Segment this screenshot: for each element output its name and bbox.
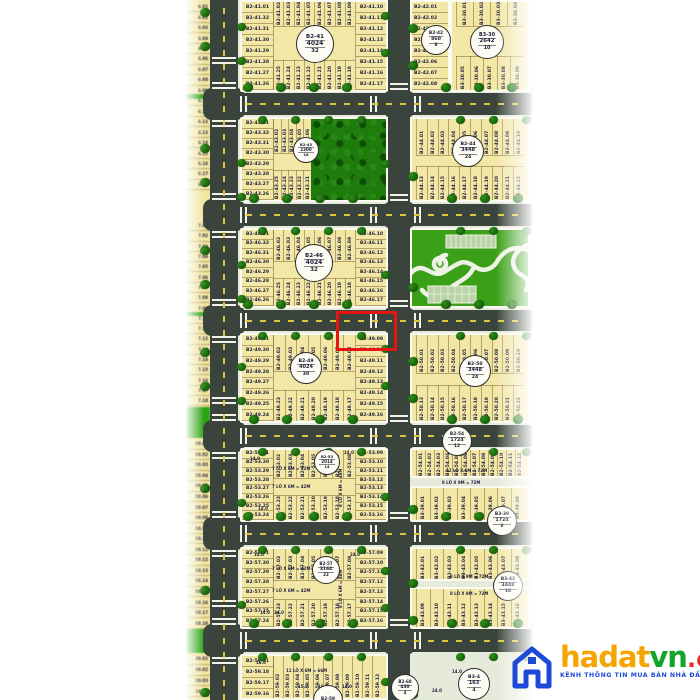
plot-label: B2-49.15	[360, 402, 383, 407]
plot-label: B2-43.28	[246, 172, 269, 177]
plot-label: B2-46.08	[338, 230, 343, 261]
selected-plot-highlight	[336, 311, 397, 351]
plot-label: B2-53.11	[360, 469, 383, 474]
strip-plot-label: 7.18	[198, 398, 208, 403]
plot-label: B2-50.04	[452, 335, 457, 373]
plot-label: B2-50.21	[506, 396, 511, 421]
badge-lot-count: 16	[505, 590, 511, 595]
plot-label: B2-46.30	[246, 260, 269, 265]
strip-plot-label: 7.15	[198, 367, 208, 372]
block-badge: B2-50344824	[459, 355, 491, 387]
tree-icon	[408, 394, 418, 403]
plot-label: B2-53.27	[246, 486, 269, 491]
plot-cell: B2-53.11	[356, 468, 387, 477]
tree-icon	[291, 546, 300, 554]
plot-label: B2-44.18	[474, 175, 479, 200]
block-badge: B2-46402432	[295, 244, 333, 282]
plot-cell: B2-49.16	[356, 410, 387, 421]
tree-icon	[408, 172, 418, 181]
block-badge: B2-41402432	[296, 25, 334, 63]
plot-cell: B2-41.17	[356, 79, 387, 90]
plot-label: B2-53.21	[301, 495, 306, 520]
plot-label: B2-46.16	[360, 289, 383, 294]
plot-label: B2-53.29	[246, 469, 269, 474]
tree-icon	[324, 332, 333, 340]
block-badge: B3-41634	[458, 668, 490, 700]
plot-cell: B2-41.10	[356, 2, 387, 13]
plot-label: B2-57.11	[360, 570, 383, 575]
tree-icon	[237, 193, 246, 201]
plot-cell: B2-57.13	[356, 588, 387, 598]
strip-plot-label: 7.12	[198, 336, 208, 341]
plot-label: B2-59.02	[276, 656, 281, 698]
plot-label: B2-41.06	[318, 2, 323, 26]
tree-icon	[309, 83, 319, 92]
strip-plot-label: 6.06	[198, 56, 208, 61]
crosswalk	[390, 512, 408, 519]
strip-plot-label: 39.01	[195, 656, 208, 661]
plot-cell: B2-57.28	[242, 578, 273, 588]
tree-icon	[237, 397, 246, 405]
plot-label: B2-46.09	[348, 230, 353, 261]
strip-plot-cell: 6.06	[186, 54, 210, 64]
plot-label: B2-49.21	[301, 396, 306, 421]
plot-label: B2-44.02	[431, 119, 436, 155]
tree-icon	[357, 653, 366, 661]
tree-icon	[447, 194, 457, 203]
tree-icon	[441, 300, 451, 309]
strip-plot-cell: 58.12	[186, 555, 210, 566]
tree-icon	[456, 332, 465, 340]
dimension-annotation: 8 LÔ X 6M = 48M	[338, 461, 343, 507]
tree-icon	[324, 546, 333, 554]
strip-plot-label: 6.17	[198, 171, 208, 176]
tree-icon	[309, 300, 319, 309]
badge-area: 163	[467, 680, 482, 688]
plot-cell: B2-44.10	[513, 119, 525, 155]
plot-label: B2-50.08	[495, 335, 500, 373]
plot-label: B2-49.02	[277, 335, 282, 371]
plot-label: B2-53.13	[360, 486, 383, 491]
tree-icon	[237, 363, 246, 371]
plot-label: B2-41.31	[246, 27, 269, 32]
tree-icon	[200, 586, 210, 595]
plot-cell: B2-49.27	[242, 378, 273, 389]
plot-column-left: B2-41.01B2-41.32B2-41.31B2-41.30B2-41.29…	[242, 2, 274, 90]
plot-cell: B2-41.31	[242, 24, 273, 35]
strip-plot-label: 58.06	[195, 494, 208, 499]
tree-icon	[200, 246, 210, 255]
tree-icon	[348, 619, 358, 628]
plot-label: B2-50.13	[420, 396, 425, 421]
watermark: hadatvn.com.vn KÊNH THÔNG TIN MUA BÁN NH…	[508, 640, 700, 690]
plot-label: B2-59.16	[246, 692, 269, 697]
tree-icon	[282, 619, 292, 628]
plot-cell: B2-43.30	[242, 149, 273, 159]
plot-label: B2-41.17	[360, 82, 383, 87]
plot-label: B2-50.20	[495, 396, 500, 421]
plot-label: B2-46.24	[287, 281, 292, 306]
tree-icon	[480, 194, 490, 203]
tree-icon	[474, 512, 484, 521]
tree-icon	[291, 448, 300, 456]
tree-icon	[381, 567, 390, 575]
plot-label: B2-44.07	[485, 119, 490, 155]
tree-icon	[408, 505, 418, 514]
dimension-annotation: 24.0	[344, 450, 354, 455]
plot-cell: B3-43.10	[430, 589, 445, 627]
plot-cell: B2-49.28	[242, 367, 273, 378]
plot-label: B2-53.04	[301, 450, 306, 478]
plot-label: B2-50.03	[441, 335, 446, 373]
tree-icon	[381, 678, 390, 686]
badge-area: 3448	[459, 147, 477, 155]
plot-cell: B2-42.07	[412, 68, 448, 79]
plot-label: B2-50.02	[431, 335, 436, 373]
block-badge: B2-53201414	[314, 449, 340, 475]
strip-plot-cell: 58.02	[186, 450, 210, 461]
plot-label: B2-41.08	[338, 2, 343, 26]
plot-cell: B2-53.15	[356, 503, 387, 512]
tree-icon	[243, 83, 253, 92]
plot-cell: B2-49.11	[356, 357, 387, 368]
tree-icon	[348, 415, 358, 424]
plot-label: B2-49.27	[246, 380, 269, 385]
plot-label: B2-54.10	[500, 450, 505, 477]
plot-cell: B2-46.16	[356, 287, 387, 297]
tree-icon	[513, 619, 523, 628]
dimension-annotation: 8 LÔ X 9M = 72M	[442, 480, 480, 485]
plot-label: B2-41.28	[246, 60, 269, 65]
plot-label: B2-46.23	[297, 281, 302, 306]
plot-cell: B2-41.32	[242, 13, 273, 24]
badge-lot-count: 8	[434, 44, 437, 49]
plot-cell: B2-41.29	[242, 46, 273, 57]
badge-lot-count: 30	[303, 372, 309, 377]
plot-label: B2-41.20	[328, 65, 333, 90]
plot-label: B2-41.13	[360, 38, 383, 43]
tree-icon	[357, 227, 366, 235]
plot-cell: B3-39.04	[457, 488, 472, 520]
plot-cell: B2-57.16	[356, 617, 387, 627]
plot-label: B2-53.26	[246, 495, 269, 500]
plot-cell: B2-49.15	[356, 400, 387, 411]
plot-cell: B2-59.17	[242, 678, 273, 689]
dimension-annotation: 14.0	[250, 456, 260, 461]
plot-cell: B2-53.10	[356, 459, 387, 468]
tree-icon	[237, 57, 246, 65]
strip-plot-label: 6.16	[198, 161, 208, 166]
plot-cell: B2-53.27	[242, 485, 273, 494]
block-badge: B3-3917248	[487, 506, 517, 536]
plot-label: B2-54.02	[428, 450, 433, 477]
plot-label: B2-41.02	[277, 2, 282, 26]
tree-icon	[408, 61, 418, 70]
tree-icon	[507, 83, 517, 92]
tree-icon	[381, 604, 390, 612]
plot-label: B2-46.29	[246, 270, 269, 275]
tree-icon	[408, 283, 418, 292]
house-logo-icon	[508, 642, 556, 690]
plot-cell: B2-41.30	[242, 35, 273, 46]
plot-label: B2-46.32	[246, 241, 269, 246]
plot-label: B2-41.04	[297, 2, 302, 26]
strip-plot-cell: 7.18	[186, 396, 210, 406]
plot-cell: B2-41.13	[356, 35, 387, 46]
dimension-annotation: 24.0	[274, 610, 284, 615]
tree-icon	[243, 512, 253, 521]
plot-label: B2-59.04	[296, 656, 301, 698]
plot-label: B3-39.02	[435, 495, 440, 520]
badge-lot-count: 4	[404, 691, 407, 695]
plot-label: B2-59.18	[246, 670, 269, 675]
plot-label: B2-59.09	[346, 656, 351, 698]
plot-label: B2-42.08	[414, 82, 437, 87]
tree-icon	[456, 546, 465, 554]
badge-area: 4024	[305, 40, 326, 49]
plot-column-left: B2-46.01B2-46.32B2-46.31B2-46.30B2-46.29…	[242, 230, 274, 306]
tree-icon	[456, 653, 465, 661]
strip-plot-label: 7.02	[198, 233, 208, 238]
tree-icon	[237, 601, 246, 609]
tree-icon	[315, 619, 325, 628]
plot-cell: B2-43.27	[242, 180, 273, 190]
plot-column-right: B2-53.09B2-53.10B2-53.11B2-53.12B2-53.13…	[355, 450, 387, 520]
tree-icon	[258, 227, 267, 235]
strip-plot-cell: 7.08	[186, 293, 210, 303]
tree-icon	[258, 332, 267, 340]
tree-icon	[381, 493, 390, 501]
plot-cell: B2-57.27	[242, 588, 273, 598]
plot-column-left: B2-57.01B2-57.30B2-57.29B2-57.28B2-57.27…	[242, 549, 274, 627]
plot-label: B2-49.16	[360, 413, 383, 418]
plot-cell: B2-46.27	[242, 287, 273, 297]
plot-label: B2-49.11	[360, 359, 383, 364]
plot-label: B2-50.14	[431, 396, 436, 421]
strip-plot-label: 6.12	[198, 119, 208, 124]
plot-cell: B2-53.26	[242, 494, 273, 503]
plot-label: B2-43.32	[246, 131, 269, 136]
block-b2-57: B2-57.01B2-57.30B2-57.29B2-57.28B2-57.27…	[240, 547, 388, 629]
plot-label: B2-50.17	[463, 396, 468, 421]
strip-plot-cell: 39.03	[186, 676, 210, 687]
dimension-annotation: 15.0	[298, 684, 308, 689]
badge-area: 3448	[466, 367, 484, 375]
tree-icon	[456, 227, 465, 235]
tree-icon	[276, 512, 286, 521]
strip-plot-label: 6.03	[198, 25, 208, 30]
plot-cell: B2-59.18	[242, 667, 273, 678]
plot-label: B2-43.03	[283, 119, 288, 153]
plot-label: B2-50.10	[517, 335, 522, 373]
plot-label: B2-50.01	[420, 335, 425, 373]
plot-label: B2-41.23	[297, 65, 302, 90]
plot-label: B2-57.21	[301, 602, 306, 627]
plot-cell: B2-49.25	[242, 400, 273, 411]
tree-icon	[489, 332, 498, 340]
plot-label: B2-41.09	[348, 2, 353, 26]
plot-cell: B2-46.15	[356, 278, 387, 288]
strip-plot-cell: 58.07	[186, 502, 210, 513]
plot-label: B2-53.16	[360, 513, 383, 518]
dimension-annotation: 8 LÔ X 9M = 72M	[450, 591, 488, 596]
plot-cell: B3-39.01	[416, 488, 431, 520]
plot-cell: B2-57.30	[242, 559, 273, 569]
plot-column-right: B2-46.10B2-46.11B2-46.12B2-46.13B2-46.14…	[355, 230, 387, 306]
strip-plot-label: 58.13	[195, 568, 208, 573]
plot-cell: B2-53.28	[242, 476, 273, 485]
tree-icon	[357, 116, 366, 124]
strip-plot-cell: 58.16	[186, 597, 210, 608]
plot-cell: B3-30.01	[456, 2, 474, 26]
plot-cell: B3-30.04	[507, 2, 525, 26]
plot-label: B2-44.08	[495, 119, 500, 155]
plot-label: B2-49.13	[360, 380, 383, 385]
plot-label: B2-43.30	[246, 151, 269, 156]
plot-label: B2-41.11	[360, 16, 383, 21]
plot-label: B2-44.10	[517, 119, 522, 155]
plot-cell: B2-41.28	[242, 57, 273, 68]
dimension-annotation: 14.0	[342, 684, 352, 689]
plot-label: B3-39.04	[462, 495, 467, 520]
tree-icon	[291, 332, 300, 340]
plot-cell: B3-30.02	[473, 2, 491, 26]
plot-label: B2-42.02	[414, 16, 437, 21]
plot-label: B2-43.29	[246, 162, 269, 167]
tree-icon	[276, 300, 286, 309]
plot-cell: B2-46.13	[356, 259, 387, 269]
tree-icon	[291, 116, 300, 124]
plot-label: B2-42.01	[414, 5, 437, 10]
plot-cell: B2-46.30	[242, 259, 273, 269]
plot-cell: B2-49.30	[242, 346, 273, 357]
strip-plot-label: 6.04	[198, 36, 208, 41]
plot-cell: B2-46.29	[242, 268, 273, 278]
tree-icon	[282, 194, 292, 203]
tree-icon	[381, 271, 390, 279]
crosswalk	[390, 619, 408, 626]
badge-lot-count: 4	[472, 688, 475, 693]
plot-label: B2-50.15	[441, 396, 446, 421]
plot-label: B2-41.16	[360, 71, 383, 76]
tree-icon	[489, 546, 498, 554]
plot-label: B2-42.07	[414, 71, 437, 76]
badge-lot-count: 32	[311, 48, 319, 54]
tree-icon	[507, 300, 517, 309]
strip-plot-cell: 7.05	[186, 262, 210, 272]
plot-cell: B2-50.10	[513, 335, 525, 373]
plot-label: B2-59.17	[246, 681, 269, 686]
tree-icon	[249, 619, 259, 628]
badge-lot-count: 12	[454, 445, 460, 450]
watermark-tagline: KÊNH THÔNG TIN MUA BÁN NHÀ ĐẤT UY TÍN	[560, 672, 700, 679]
plot-label: B2-44.01	[420, 119, 425, 155]
badge-area: 4024	[297, 364, 315, 372]
strip-plot-label: 58.02	[195, 452, 208, 457]
badge-lot-count: 8	[500, 525, 503, 530]
strip-plot-cell: 7.02	[186, 231, 210, 241]
plot-label: B2-53.14	[360, 495, 383, 500]
tree-icon	[200, 144, 210, 153]
plot-label: B3-43.01	[421, 549, 426, 580]
plot-label: B2-41.01	[246, 5, 269, 10]
strip-plot-label: 39.02	[195, 667, 208, 672]
plot-label: B2-57.02	[277, 549, 282, 580]
strip-plot-label: 58.17	[195, 610, 208, 615]
tree-icon	[291, 227, 300, 235]
plot-cell: B2-43.28	[242, 170, 273, 180]
tree-icon	[249, 194, 259, 203]
strip-plot-cell: 6.03	[186, 23, 210, 33]
plot-label: B2-57.16	[360, 619, 383, 624]
plot-label: B2-53.22	[289, 495, 294, 520]
tree-icon	[441, 512, 451, 521]
road-centerline	[246, 533, 526, 535]
watermark-text: hadatvn.com.vn KÊNH THÔNG TIN MUA BÁN NH…	[560, 640, 700, 679]
tree-icon	[522, 332, 531, 340]
plot-label: B2-49.18	[336, 396, 341, 421]
plot-label: B2-46.03	[287, 230, 292, 261]
tree-icon	[342, 512, 352, 521]
plot-label: B2-59.05	[306, 656, 311, 698]
plot-label: B2-53.10	[360, 460, 383, 465]
road-centerline	[246, 640, 526, 642]
badge-lot-count: 24	[472, 375, 478, 380]
plot-label: B2-53.15	[360, 504, 383, 509]
dimension-annotation: 14.0	[258, 506, 268, 511]
road-centerline	[223, 0, 225, 700]
plot-label: B2-57.04	[301, 549, 306, 580]
plot-cell: B2-53.29	[242, 468, 273, 477]
tree-icon	[258, 546, 267, 554]
dimension-annotation: 7 LÔ X 6M = 42M	[272, 484, 310, 489]
plot-cell: B2-49.14	[356, 389, 387, 400]
tree-icon	[258, 116, 267, 124]
strip-plot-cell: 58.04	[186, 471, 210, 482]
brand-domain: .com.vn	[687, 645, 700, 673]
plot-label: B2-46.14	[360, 270, 383, 275]
crosswalk	[390, 194, 408, 201]
plot-cell: B2-43.32	[242, 129, 273, 139]
strip-plot-cell: 58.13	[186, 566, 210, 577]
watermark-brand: hadatvn.com.vn	[560, 640, 700, 674]
tree-icon	[456, 116, 465, 124]
strip-plot-label: 6.08	[198, 77, 208, 82]
tree-icon	[408, 24, 418, 33]
strip-plot-label: 58.14	[195, 578, 208, 583]
strip-plot-cell: 7.15	[186, 365, 210, 375]
plot-label: B2-59.11	[366, 656, 371, 698]
tree-icon	[200, 688, 210, 697]
tree-icon	[315, 415, 325, 424]
tree-icon	[474, 83, 484, 92]
plot-label: B2-57.14	[360, 600, 383, 605]
plot-cell: B2-43.31	[242, 139, 273, 149]
plot-label: B2-41.32	[246, 16, 269, 21]
tree-icon	[309, 512, 319, 521]
plot-label: B2-49.12	[360, 370, 383, 375]
plot-cell: B2-41.16	[356, 68, 387, 79]
crosswalk	[390, 300, 408, 307]
tree-icon	[522, 116, 531, 124]
tree-icon	[522, 546, 531, 554]
strip-plot-cell: 6.13	[186, 127, 210, 137]
strip-plot-cell: 6.07	[186, 65, 210, 75]
plot-cell: B2-53.13	[356, 485, 387, 494]
tree-icon	[357, 546, 366, 554]
block-badge: B2-54172412	[442, 426, 472, 456]
plot-label: B3-43.10	[435, 602, 440, 627]
